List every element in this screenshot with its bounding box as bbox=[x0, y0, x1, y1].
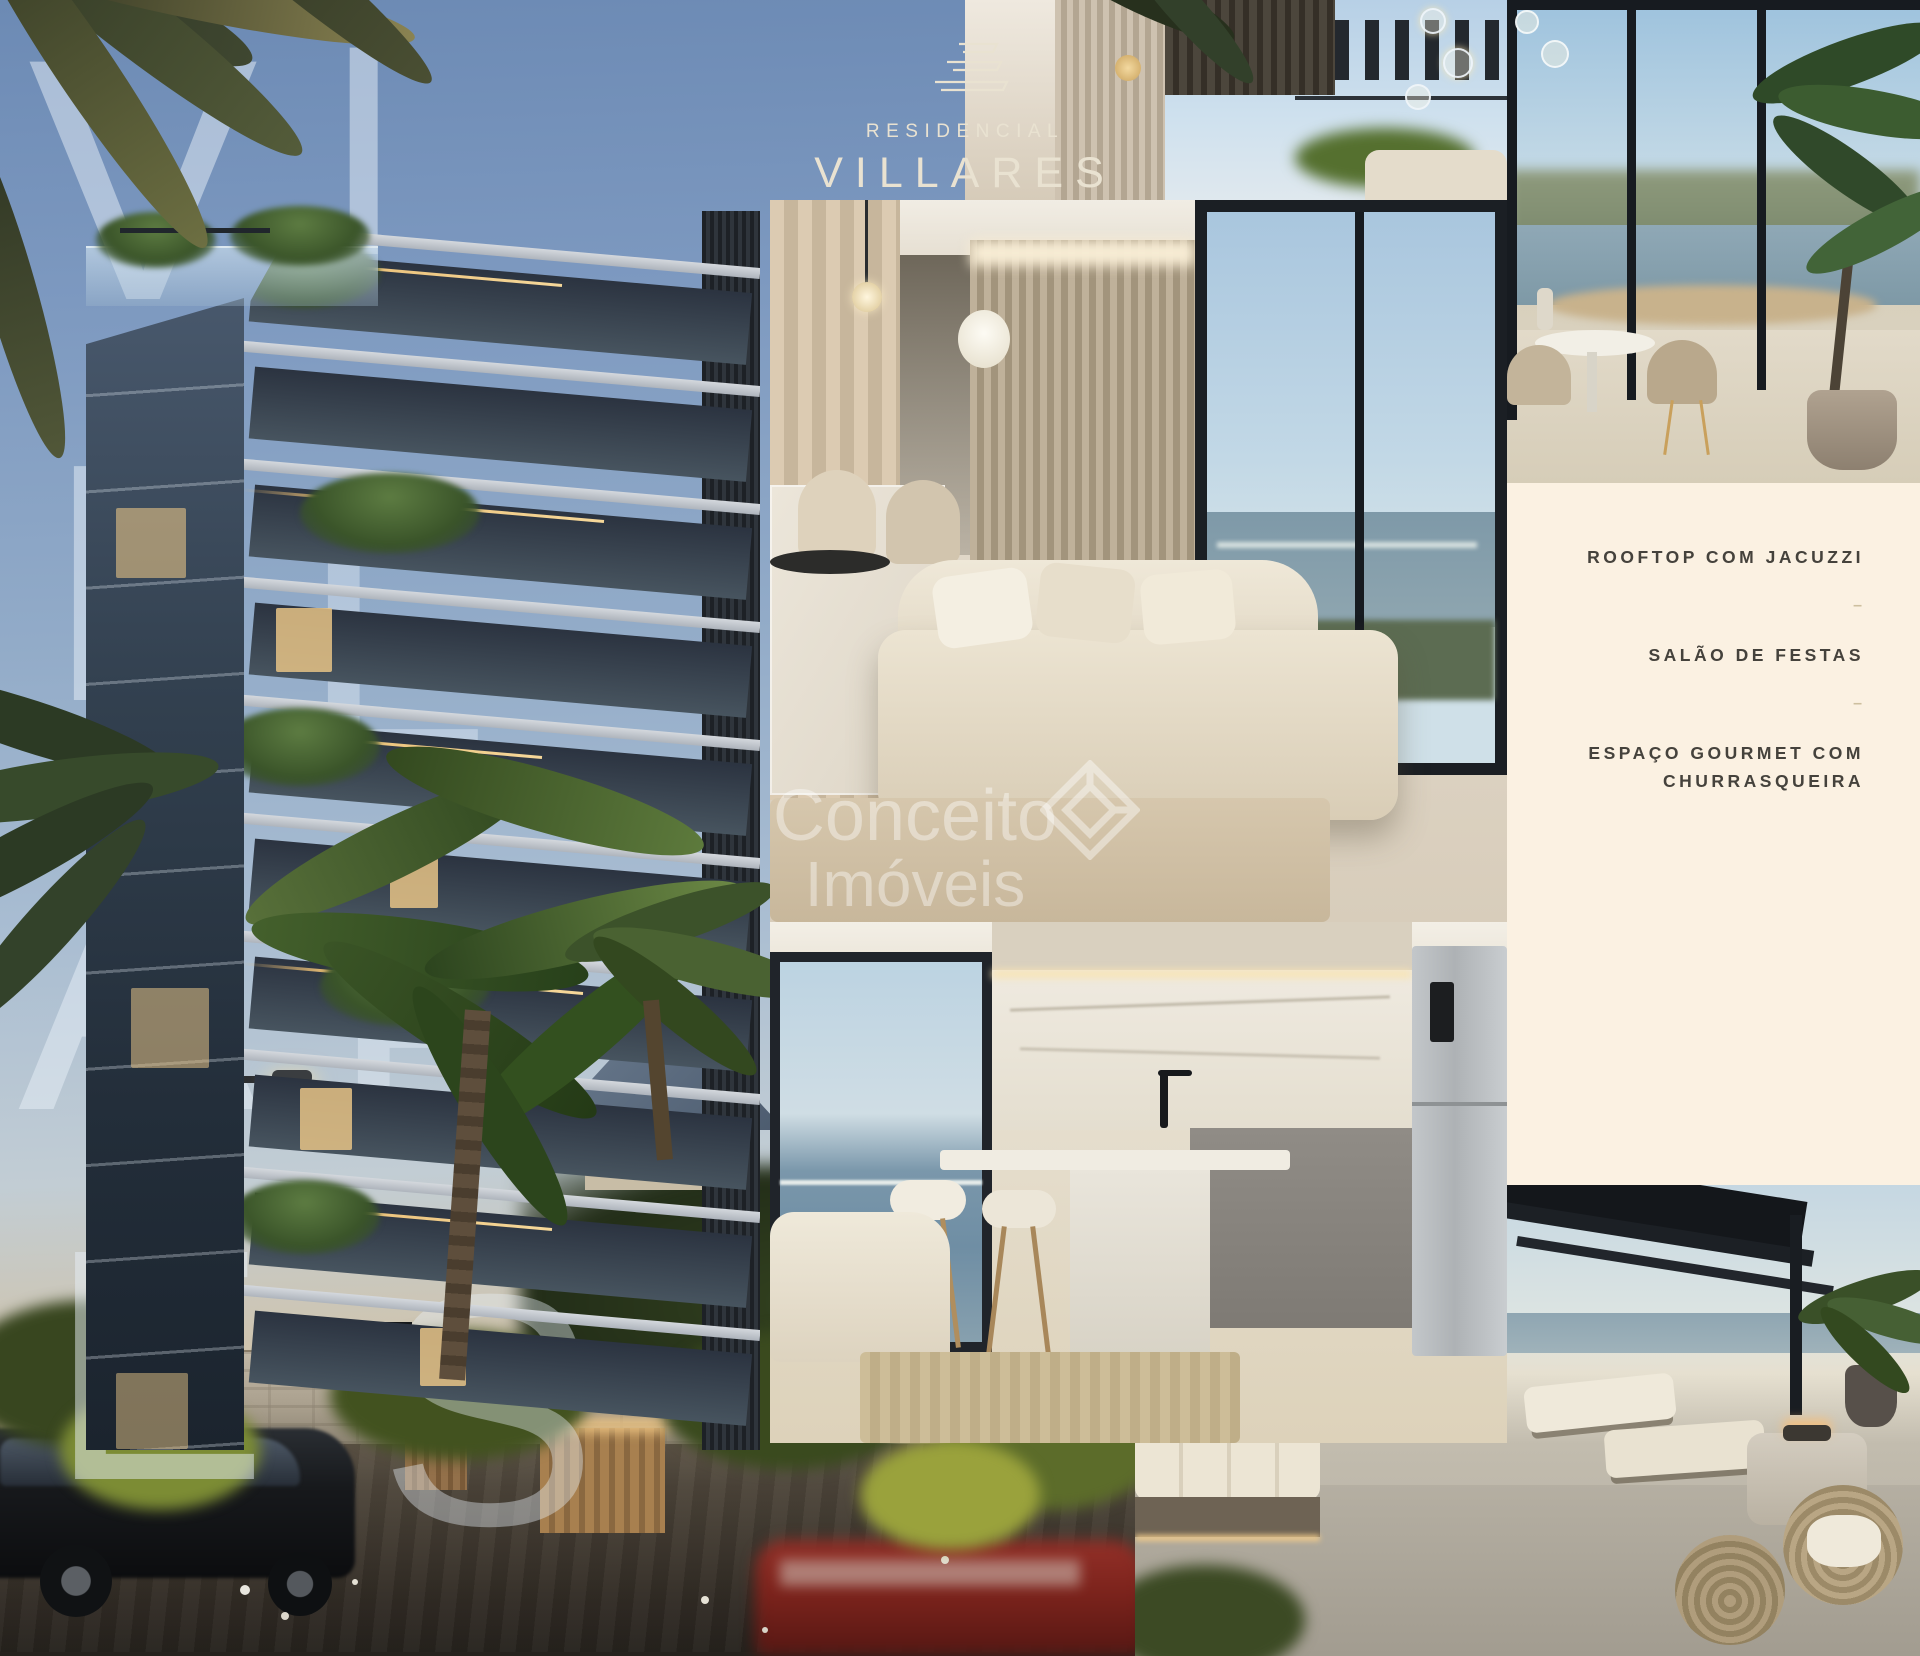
balcony-greenery bbox=[300, 473, 480, 553]
amenity-item: SALÃO DE FESTAS bbox=[1648, 641, 1864, 669]
garden-flowers bbox=[240, 1585, 250, 1595]
upper-cabinets bbox=[992, 922, 1412, 970]
rooftop-shrubs bbox=[230, 206, 370, 266]
amenity-divider: – bbox=[1853, 695, 1864, 713]
brand-residencial: RESIDENCIAL bbox=[790, 121, 1140, 143]
lit-window bbox=[276, 608, 332, 672]
sun-lounger bbox=[1523, 1372, 1677, 1433]
fridge-control-panel bbox=[1430, 982, 1454, 1042]
diamond-gem-icon bbox=[1040, 760, 1140, 860]
brand-villares: VILLARES bbox=[790, 149, 1140, 198]
fire-pit-flame bbox=[1783, 1425, 1831, 1441]
dining-chair bbox=[798, 470, 876, 558]
table-pedestal bbox=[1587, 352, 1597, 412]
watermark-line2: Imóveis bbox=[765, 852, 1065, 916]
paper-lantern bbox=[958, 310, 1010, 368]
sofa-pillow bbox=[930, 566, 1034, 651]
kitchen-photo bbox=[770, 922, 1507, 1443]
bench-underglow bbox=[1135, 1535, 1320, 1541]
red-car-motion-blur bbox=[755, 1540, 1145, 1656]
stool-leg bbox=[1030, 1226, 1051, 1354]
glass-pendant-bulb bbox=[1541, 40, 1569, 68]
velvet-chair bbox=[1507, 345, 1571, 405]
pendant-cord bbox=[865, 200, 868, 285]
stainless-fridge bbox=[1412, 946, 1507, 1356]
pendant-bulb bbox=[852, 282, 882, 312]
under-cabinet-led bbox=[992, 970, 1412, 978]
stone-planter-pot bbox=[1807, 390, 1897, 470]
glass-pendant-bulb bbox=[1420, 8, 1446, 34]
amenities-panel: ROOFTOP COM JACUZZI – SALÃO DE FESTAS – … bbox=[1507, 483, 1920, 1185]
woven-rug bbox=[860, 1352, 1240, 1443]
stool-seat bbox=[982, 1190, 1056, 1228]
terrace-sofa bbox=[1365, 150, 1507, 200]
glass-pendant-bulb bbox=[1443, 48, 1473, 78]
brand-logo: RESIDENCIAL VILLARES bbox=[790, 40, 1140, 198]
suv-front-wheel bbox=[40, 1545, 112, 1617]
lit-window bbox=[300, 1088, 352, 1150]
sofa-pillow bbox=[1139, 568, 1237, 646]
car-glass-streak bbox=[780, 1560, 1080, 1586]
window-frame-top bbox=[1507, 0, 1920, 10]
villares-marketing-collage: V I L L A R E S bbox=[0, 0, 1920, 1656]
sofa-pillow bbox=[1034, 561, 1136, 645]
terrace-railing bbox=[1295, 96, 1507, 100]
watermark-line1: Conceito bbox=[765, 780, 1065, 852]
sun-lounger bbox=[1604, 1419, 1767, 1478]
suv-rear-wheel bbox=[268, 1552, 332, 1616]
fridge-door-split bbox=[1412, 1102, 1507, 1106]
dining-chair bbox=[886, 480, 960, 564]
beach-sand bbox=[1547, 285, 1877, 325]
ocean-dining-photo bbox=[1507, 0, 1920, 483]
amenity-item: ROOFTOP COM JACUZZI bbox=[1587, 543, 1864, 571]
glass-pendant-bulb bbox=[1515, 10, 1539, 34]
lit-window bbox=[116, 1373, 188, 1449]
black-faucet bbox=[1160, 1072, 1168, 1128]
lit-window bbox=[131, 988, 209, 1068]
lit-window bbox=[116, 508, 186, 578]
window-mullion bbox=[1757, 0, 1766, 390]
bench-base bbox=[1135, 1497, 1320, 1537]
watermark: Conceito Imóveis bbox=[765, 780, 1065, 916]
table-vase bbox=[1537, 288, 1553, 330]
stacked-building-floors-icon bbox=[913, 40, 1017, 106]
lit-garden-bush bbox=[860, 1440, 1040, 1550]
amenity-item: ESPAÇO GOURMET COM CHURRASQUEIRA bbox=[1564, 739, 1864, 795]
balcony-greenery bbox=[220, 708, 380, 786]
balcony-greenery bbox=[230, 1180, 380, 1254]
rattan-chair bbox=[1675, 1535, 1785, 1645]
faucet-spout bbox=[1158, 1070, 1192, 1076]
island-countertop bbox=[940, 1150, 1290, 1170]
glass-pendant-bulb bbox=[1405, 84, 1431, 110]
island-waterfall-side bbox=[1070, 1170, 1210, 1355]
chair-cushion bbox=[1807, 1515, 1881, 1567]
amenity-divider: – bbox=[1853, 597, 1864, 615]
pergola-roof-slats bbox=[1335, 20, 1507, 80]
kitchen-sofa bbox=[770, 1212, 950, 1362]
black-dining-table bbox=[770, 550, 890, 574]
wave-foam bbox=[1217, 542, 1477, 548]
cove-light bbox=[970, 240, 1195, 266]
velvet-chair bbox=[1647, 340, 1717, 404]
